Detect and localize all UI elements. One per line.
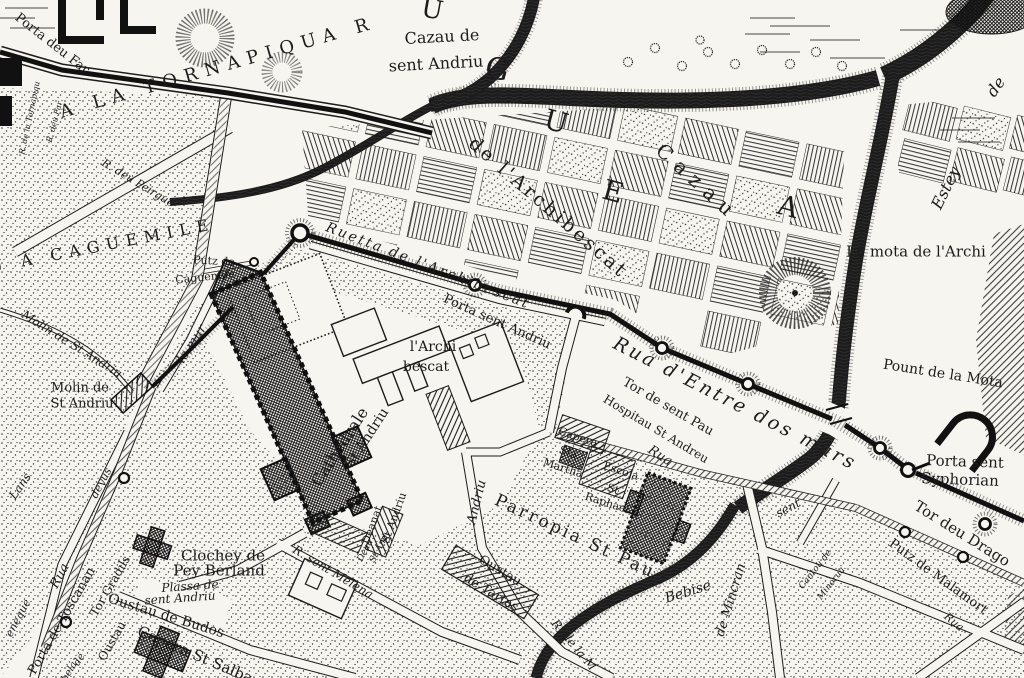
label-a-la-tornapiqua: A LA TORNAPIQUA R [58,14,378,122]
letter-u-1: U [419,0,445,25]
label-molin-stream: Molin de St Andriu [20,308,124,379]
label-estey-de: de [984,74,1008,99]
letter-e: E [599,176,626,208]
label-cazau-spread: Cazau [652,140,743,225]
label-rua-tornapiqu: R. de la Tornapiqu [18,81,41,156]
label-oustau-sw: Oustau [96,619,128,663]
label-sta: Sta. [558,444,582,461]
label-escola: Escola [602,460,640,482]
label-l-archi: l'Archi [410,340,456,354]
letter-u-2: U [541,105,571,138]
label-eneque: eneque [4,597,33,638]
label-parropia-st-pau: Parropia St Pau [492,492,658,582]
label-ruetta: Ruetta de l'Archibescat [324,220,532,311]
label-caguemile: Caguemile [175,268,235,285]
label-rua-hospitau: Rua [646,443,675,468]
label-r-de-la-m: R. de la M [549,617,598,672]
map-labels: Porta deu Far R. de la Tornapiqu R. deu … [0,0,1024,678]
label-molin-st-andriu: St Andriu [50,398,113,411]
letter-g: G [482,52,513,87]
label-rua-se: Rua [942,611,966,634]
label-de-mincran: de Mincran [714,562,749,638]
label-escola-st: St [606,482,621,496]
label-lans: Lans [7,471,33,502]
label-le-mur: le mur [175,322,209,365]
label-bela-fragment: bela [60,660,79,678]
label-sent-fragment: sent [774,497,802,520]
label-bebise: Bebise [663,578,713,605]
label-molin-de: Molin de [51,382,109,395]
label-la-mota: La mota de l'Archi [846,245,986,260]
label-raphael: Raphael [584,491,631,516]
label-a-caguemile: U À CAGUEMILE [0,216,216,275]
label-porta-deu-far: Porta deu Far [13,11,92,77]
label-minorua: Minorua [817,566,848,602]
label-pey-berland: Pey Berland [173,564,265,579]
label-estey: Estey [929,164,963,211]
label-pount-de-la-mota: Pount de la Mota [882,358,1004,391]
label-rua-sw: Rua [48,562,72,591]
label-syphorian: Syphorian [921,471,999,489]
label-porta-sent: Porta sent [926,453,1004,471]
label-cazau-de: Cazau de [404,27,480,47]
letter-a: A [775,191,802,223]
label-sent-andriu-top: sent Andriu [388,54,483,75]
label-deyus: deyus [89,466,114,500]
label-andriu-street: Andriu [465,479,488,526]
label-de-l-archibescat: de l'Archibescat [465,134,631,282]
label-bescat: bescat [403,360,449,374]
label-r-deu-peirgue: R. deu Peirgue [100,157,176,209]
engraved-city-map: Porta deu Far R. de la Tornapiqu R. deu … [0,0,1024,678]
label-putz-de: Putz de [193,254,235,267]
